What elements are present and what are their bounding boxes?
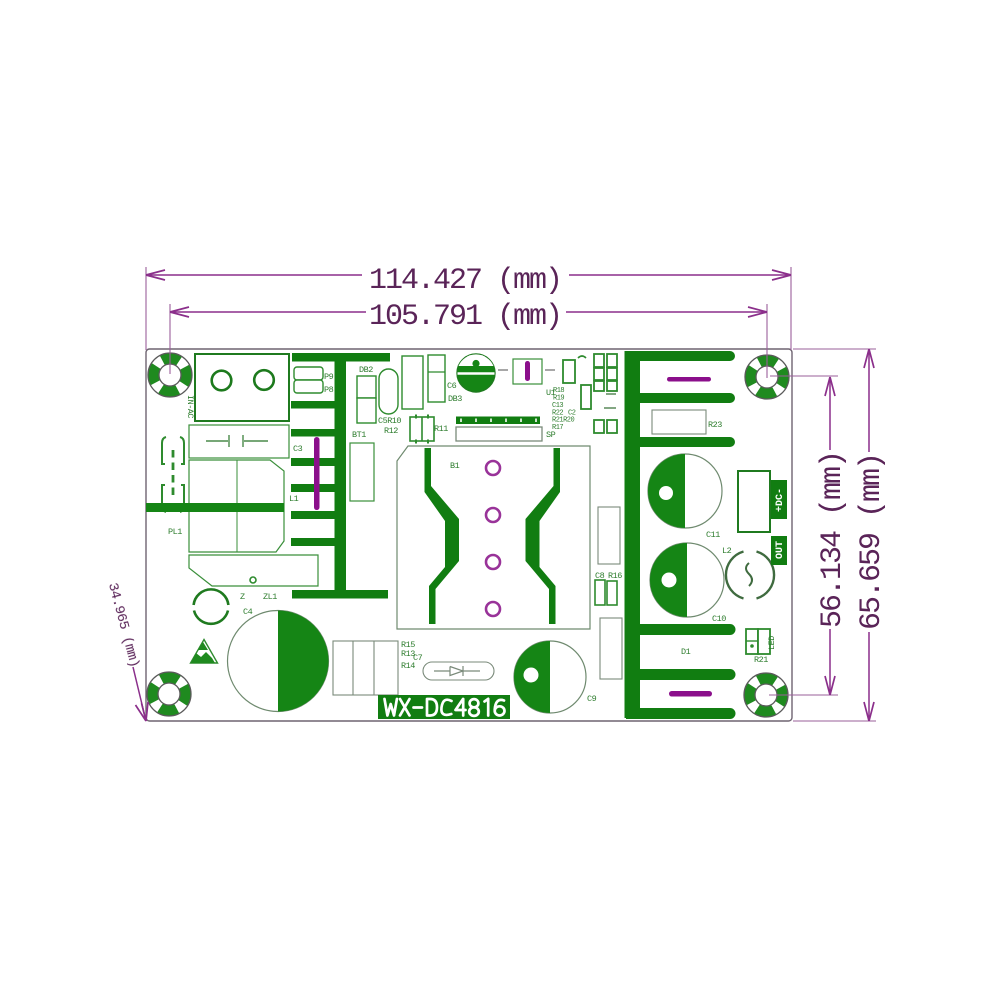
svg-text:R16: R16 xyxy=(608,571,622,581)
svg-text:R23: R23 xyxy=(708,420,722,430)
svg-text:C3: C3 xyxy=(293,444,303,454)
svg-text:65.659 (mm): 65.659 (mm) xyxy=(855,454,889,630)
svg-text:114.427 (mm): 114.427 (mm) xyxy=(369,264,561,298)
svg-text:34.965 (mm): 34.965 (mm) xyxy=(104,581,142,669)
svg-text:DB3: DB3 xyxy=(448,394,462,404)
svg-text:BT1: BT1 xyxy=(352,430,366,440)
svg-text:C6: C6 xyxy=(447,381,457,391)
svg-text:B1: B1 xyxy=(450,461,460,471)
svg-text:ZL1: ZL1 xyxy=(263,592,277,602)
svg-text:P9: P9 xyxy=(324,372,334,382)
svg-text:Z: Z xyxy=(240,592,245,602)
svg-text:P8: P8 xyxy=(324,385,334,395)
svg-text:C8: C8 xyxy=(595,571,605,581)
svg-text:+DC-: +DC- xyxy=(775,488,786,512)
svg-text:L2: L2 xyxy=(722,546,732,556)
svg-text:R11: R11 xyxy=(434,424,448,434)
svg-text:OUT: OUT xyxy=(775,541,786,559)
svg-text:105.791 (mm): 105.791 (mm) xyxy=(369,300,561,334)
svg-text:PL1: PL1 xyxy=(168,527,182,537)
svg-text:LED: LED xyxy=(767,636,777,650)
svg-text:R12: R12 xyxy=(384,426,398,436)
svg-text:C10: C10 xyxy=(712,614,726,624)
svg-text:56.134 (mm): 56.134 (mm) xyxy=(816,452,850,628)
svg-text:R21: R21 xyxy=(754,655,768,665)
svg-text:R14: R14 xyxy=(401,661,415,671)
svg-text:C4: C4 xyxy=(243,607,253,617)
svg-text:DB2: DB2 xyxy=(359,365,373,375)
svg-text:IN-AC: IN-AC xyxy=(185,395,195,418)
svg-text:D1: D1 xyxy=(681,647,691,657)
svg-text:L1: L1 xyxy=(289,494,299,504)
svg-text:C11: C11 xyxy=(706,530,720,540)
svg-text:R17: R17 xyxy=(552,424,563,432)
svg-text:C9: C9 xyxy=(587,694,597,704)
svg-text:C5R10: C5R10 xyxy=(378,416,401,426)
